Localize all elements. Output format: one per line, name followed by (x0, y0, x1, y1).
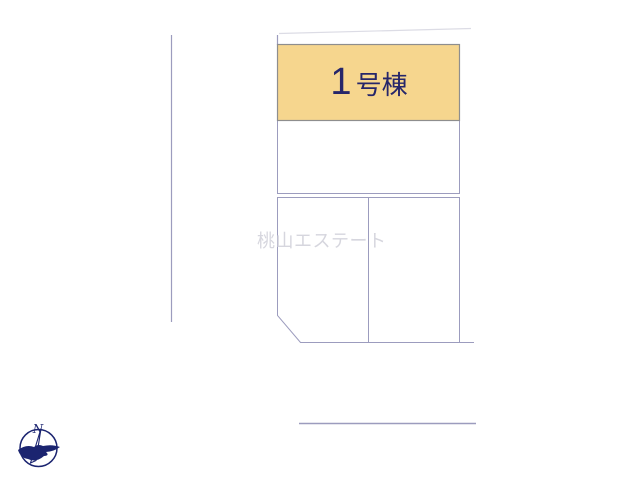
site-plan-image: N 桃山エステート 1 号棟 (0, 0, 640, 480)
north-faint-boundary-line (279, 29, 471, 34)
plot-1-label: 1 号棟 (278, 44, 460, 120)
plot-1-number: 1 (330, 63, 352, 101)
plot-4-outline (369, 198, 460, 343)
plot-3-outline (278, 198, 369, 343)
plot-1-suffix: 号棟 (356, 66, 408, 98)
compass-north-icon: N (18, 422, 60, 467)
compass-north-label: N (32, 422, 44, 436)
plot-2-outline (278, 121, 460, 194)
